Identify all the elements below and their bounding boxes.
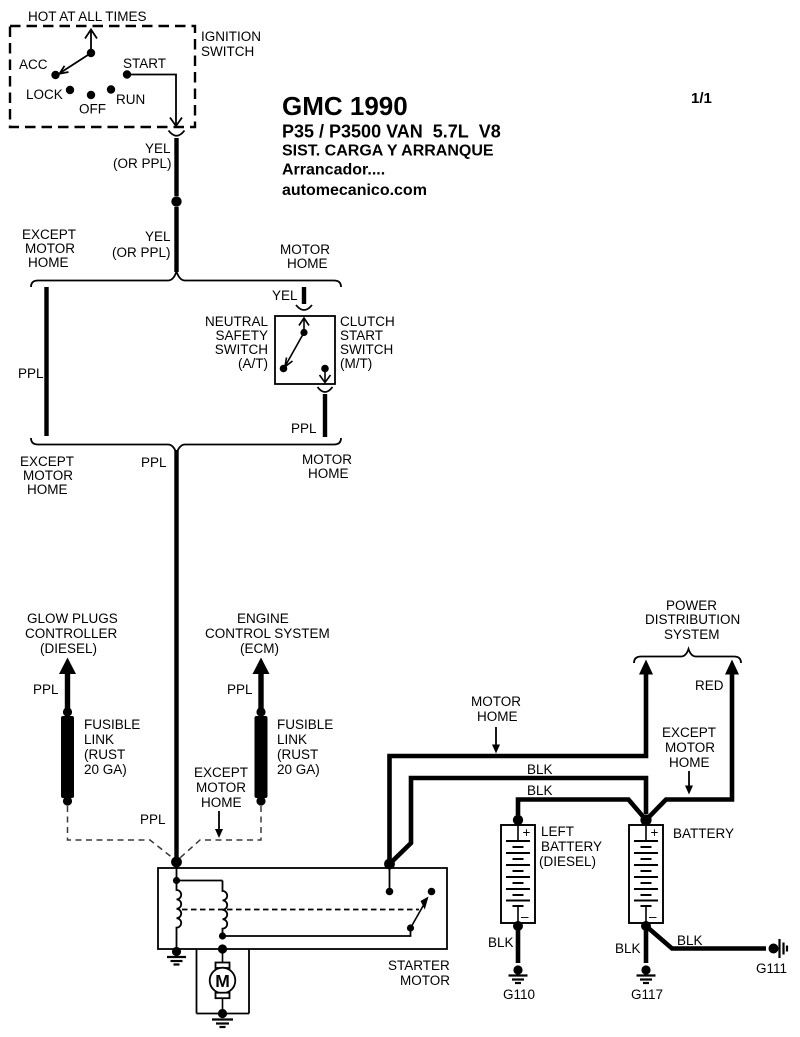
svg-text:G110: G110 (503, 987, 535, 1002)
svg-text:PPL: PPL (140, 812, 166, 827)
svg-text:HOME: HOME (669, 755, 710, 770)
svg-text:HOME: HOME (27, 482, 68, 497)
svg-text:–: – (649, 909, 657, 924)
svg-text:(OR PPL): (OR PPL) (112, 245, 171, 260)
svg-text:+: + (651, 825, 659, 840)
svg-text:OFF: OFF (79, 102, 106, 117)
svg-text:PPL: PPL (291, 421, 317, 436)
svg-text:BLK: BLK (527, 783, 553, 798)
svg-text:SYSTEM: SYSTEM (664, 627, 720, 642)
svg-text:STARTER: STARTER (388, 958, 450, 973)
svg-text:(DIESEL): (DIESEL) (40, 641, 97, 656)
svg-text:MOTOR: MOTOR (280, 242, 330, 257)
svg-text:PPL: PPL (227, 682, 253, 697)
svg-text:–: – (521, 909, 529, 924)
svg-text:SWITCH: SWITCH (201, 44, 254, 59)
svg-text:SWITCH: SWITCH (215, 342, 268, 357)
svg-text:BLK: BLK (615, 941, 641, 956)
svg-text:LEFT: LEFT (541, 824, 574, 839)
svg-text:PPL: PPL (18, 366, 44, 381)
svg-text:SIST. CARGA Y ARRANQUE: SIST. CARGA Y ARRANQUE (282, 143, 494, 160)
svg-text:(RUST: (RUST (84, 747, 125, 762)
svg-text:(OR PPL): (OR PPL) (113, 156, 172, 171)
svg-text:(ECM): (ECM) (240, 641, 279, 656)
svg-text:MOTOR: MOTOR (471, 694, 521, 709)
svg-text:DISTRIBUTION: DISTRIBUTION (645, 612, 740, 627)
svg-text:GLOW PLUGS: GLOW PLUGS (27, 611, 118, 626)
svg-text:RED: RED (695, 678, 724, 693)
svg-text:MOTOR: MOTOR (23, 468, 73, 483)
svg-text:IGNITION: IGNITION (201, 29, 261, 44)
svg-text:MOTOR: MOTOR (302, 452, 352, 467)
svg-text:FUSIBLE: FUSIBLE (84, 717, 140, 732)
svg-text:ACC: ACC (19, 57, 48, 72)
svg-text:BLK: BLK (488, 935, 514, 950)
svg-text:P35 / P3500 VAN 5.7L V8: P35 / P3500 VAN 5.7L V8 (282, 122, 501, 142)
svg-text:(M/T): (M/T) (340, 356, 372, 371)
svg-text:START: START (340, 328, 383, 343)
svg-text:BLK: BLK (527, 762, 553, 777)
svg-text:NEUTRAL: NEUTRAL (205, 314, 269, 329)
svg-text:Arrancador....: Arrancador.... (282, 162, 385, 179)
svg-text:CLUTCH: CLUTCH (340, 314, 395, 329)
svg-text:CONTROL SYSTEM: CONTROL SYSTEM (205, 626, 330, 641)
svg-text:(DIESEL): (DIESEL) (539, 854, 596, 869)
svg-text:YEL: YEL (145, 229, 171, 244)
svg-text:+: + (523, 825, 531, 840)
svg-text:MOTOR: MOTOR (196, 780, 246, 795)
svg-text:EXCEPT: EXCEPT (20, 454, 74, 469)
svg-text:automecanico.com: automecanico.com (282, 182, 427, 199)
svg-text:BATTERY: BATTERY (673, 826, 734, 841)
svg-text:EXCEPT: EXCEPT (22, 227, 76, 242)
svg-text:BLK: BLK (677, 933, 703, 948)
svg-text:POWER: POWER (666, 598, 717, 613)
svg-text:YEL: YEL (272, 288, 298, 303)
svg-text:PPL: PPL (141, 455, 167, 470)
svg-text:YEL: YEL (145, 141, 171, 156)
svg-text:EXCEPT: EXCEPT (194, 765, 248, 780)
svg-text:HOME: HOME (308, 466, 349, 481)
svg-text:MOTOR: MOTOR (25, 241, 75, 256)
svg-text:(RUST: (RUST (277, 747, 318, 762)
svg-text:RUN: RUN (116, 92, 145, 107)
svg-text:20 GA): 20 GA) (84, 762, 127, 777)
svg-text:LINK: LINK (277, 732, 307, 747)
svg-text:BATTERY: BATTERY (541, 839, 602, 854)
svg-text:HOT AT ALL TIMES: HOT AT ALL TIMES (28, 9, 147, 24)
svg-text:HOME: HOME (477, 709, 518, 724)
svg-text:(A/T): (A/T) (238, 356, 268, 371)
svg-text:MOTOR: MOTOR (400, 973, 450, 988)
svg-text:MOTOR: MOTOR (665, 740, 715, 755)
svg-text:LOCK: LOCK (26, 87, 63, 102)
svg-text:GMC 1990: GMC 1990 (282, 91, 408, 121)
svg-text:1/1: 1/1 (691, 90, 712, 107)
svg-text:LINK: LINK (84, 732, 114, 747)
svg-text:ENGINE: ENGINE (237, 611, 289, 626)
svg-text:SAFETY: SAFETY (215, 328, 268, 343)
svg-text:HOME: HOME (28, 255, 69, 270)
svg-text:HOME: HOME (201, 795, 242, 810)
svg-text:FUSIBLE: FUSIBLE (277, 717, 333, 732)
svg-text:20 GA): 20 GA) (277, 762, 320, 777)
svg-text:HOME: HOME (287, 256, 328, 271)
svg-text:SWITCH: SWITCH (340, 342, 393, 357)
svg-text:EXCEPT: EXCEPT (662, 725, 716, 740)
svg-text:G111: G111 (756, 961, 787, 976)
svg-text:CONTROLLER: CONTROLLER (25, 626, 118, 641)
svg-text:G117: G117 (631, 987, 663, 1002)
svg-text:M: M (215, 971, 230, 991)
svg-text:START: START (123, 56, 166, 71)
svg-text:PPL: PPL (33, 682, 59, 697)
